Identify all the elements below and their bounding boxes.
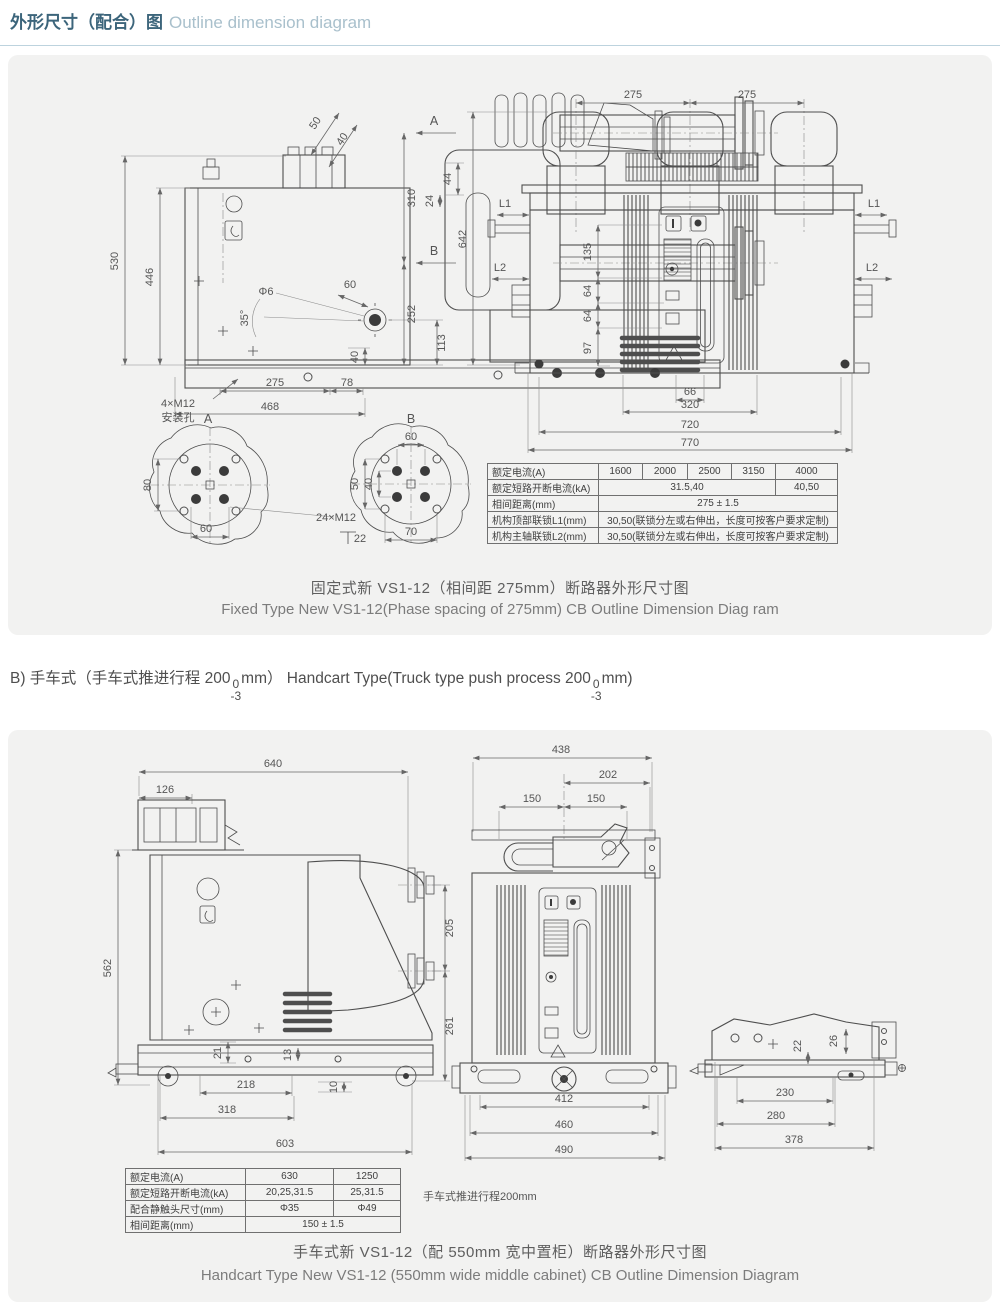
dim-642: 642 <box>457 230 469 248</box>
tolerance-lower: -3 <box>591 690 602 702</box>
dim-412: 412 <box>555 1093 573 1105</box>
handcart-type-panel: 640 126 562 205 261 21 <box>8 730 992 1302</box>
dim-202: 202 <box>599 769 617 781</box>
dim-150-left: 150 <box>523 793 541 805</box>
dim-26: 26 <box>828 1035 840 1047</box>
spec-cell: Φ49 <box>334 1201 401 1217</box>
dim-275: 275 <box>266 377 284 389</box>
dim-40b: 40 <box>349 351 361 363</box>
dim-770: 770 <box>681 437 699 449</box>
spec-label: 配合静触头尺寸(mm) <box>126 1201 246 1217</box>
spec-label: 机构顶部联锁L1(mm) <box>488 512 599 528</box>
handcart-side-view: 640 126 562 205 261 21 <box>102 758 456 1155</box>
detail-view-b: B 60 50 40 70 <box>349 412 471 544</box>
fixed-type-drawing: 530 446 50 40 44 24 Φ6 60 35° 113 40 A B… <box>8 55 992 635</box>
spec-label: 额定短路开断电流(kA) <box>488 480 599 496</box>
dim-80: 80 <box>142 479 154 491</box>
section-b-heading: B) 手车式（手车式推进行程 2000-3mm） Handcart Type(T… <box>10 666 633 702</box>
section-b-prefix: B) 手车式（手车式推进行程 200 <box>10 670 230 687</box>
dim-70: 70 <box>405 526 417 538</box>
mount-note-line2: 安装孔 <box>162 410 195 424</box>
section-b-suffix: mm) <box>602 670 633 687</box>
dim-310: 310 <box>406 189 418 207</box>
spec-cell: 2500 <box>688 464 732 480</box>
dim-603: 603 <box>276 1138 294 1150</box>
dim-97: 97 <box>582 342 594 354</box>
section-label-a: A <box>430 114 439 128</box>
dim-60-b: 60 <box>405 431 417 443</box>
tolerance-stack: 0-3 <box>591 678 602 702</box>
spec-cell: 630 <box>246 1169 334 1185</box>
spec-cell: 4000 <box>776 464 838 480</box>
dim-275-left: 275 <box>624 89 642 101</box>
spec-label: 机构主轴联锁L2(mm) <box>488 528 599 544</box>
page-title-zh: 外形尺寸（配合）图 <box>10 13 163 32</box>
page-title-en: Outline dimension diagram <box>169 13 371 32</box>
dim-135: 135 <box>582 243 594 261</box>
dim-378: 378 <box>785 1134 803 1146</box>
dim-60-a: 60 <box>200 523 212 535</box>
dim-205: 205 <box>444 919 456 937</box>
handcart-front-view: 438 202 150 150 412 460 <box>452 744 676 1161</box>
dim-35deg: 35° <box>239 310 251 327</box>
tolerance-stack: 0-3 <box>230 678 241 702</box>
dim-720: 720 <box>681 419 699 431</box>
tolerance-lower: -3 <box>230 690 241 702</box>
dim-252: 252 <box>406 305 418 323</box>
dim-275-right: 275 <box>738 89 756 101</box>
handcart-caption-en: Handcart Type New VS1-12 (550mm wide mid… <box>8 1267 992 1284</box>
dim-50: 50 <box>307 115 324 132</box>
handcart-spec-table: 额定电流(A)6301250 额定短路开断电流(kA)20,25,31.525,… <box>125 1168 401 1233</box>
dim-78: 78 <box>341 377 353 389</box>
dim-64a: 64 <box>582 285 594 297</box>
spec-cell: 31.5,40 <box>599 480 776 496</box>
dim-40a: 40 <box>334 131 351 148</box>
spec-cell: Φ35 <box>246 1201 334 1217</box>
section-label-b: B <box>430 244 438 258</box>
dim-446: 446 <box>144 268 156 286</box>
dim-13: 13 <box>282 1049 294 1061</box>
section-b-mid: mm） Handcart Type(Truck type push proces… <box>241 670 591 687</box>
dim-l2-right: L2 <box>866 262 878 274</box>
header-divider <box>0 45 1000 46</box>
spec-cell: 1250 <box>334 1169 401 1185</box>
spec-label: 额定电流(A) <box>488 464 599 480</box>
page-header: 外形尺寸（配合）图Outline dimension diagram <box>10 8 371 33</box>
dim-50-b: 50 <box>349 478 361 490</box>
dim-l1-right: L1 <box>868 198 880 210</box>
spec-cell: 20,25,31.5 <box>246 1185 334 1201</box>
dim-320: 320 <box>681 399 699 411</box>
dim-21: 21 <box>212 1047 224 1059</box>
detail-b-label: B <box>407 412 415 426</box>
dim-113: 113 <box>436 334 448 352</box>
spec-cell: 30,50(联锁分左或右伸出，长度可按客户要求定制) <box>599 512 838 528</box>
dim-l1-left: L1 <box>499 198 511 210</box>
dim-22: 22 <box>792 1040 804 1052</box>
dim-66: 66 <box>684 386 696 398</box>
dim-530: 530 <box>109 252 121 270</box>
dim-438: 438 <box>552 744 570 756</box>
handcart-caption-zh: 手车式新 VS1-12（配 550mm 宽中置柜）断路器外形尺寸图 <box>8 1241 992 1262</box>
dim-490: 490 <box>555 1144 573 1156</box>
fixed-caption-zh: 固定式新 VS1-12（相间距 275mm）断路器外形尺寸图 <box>8 577 992 598</box>
dim-468: 468 <box>261 401 279 413</box>
dim-22-depth: 22 <box>354 533 366 545</box>
handcart-base-view: 22 26 230 280 378 <box>690 1014 906 1151</box>
dim-640: 640 <box>264 758 282 770</box>
dim-318: 318 <box>218 1104 236 1116</box>
spec-cell: 25,31.5 <box>334 1185 401 1201</box>
spec-cell: 30,50(联锁分左或右伸出，长度可按客户要求定制) <box>599 528 838 544</box>
dim-261: 261 <box>444 1017 456 1035</box>
spec-label: 额定短路开断电流(kA) <box>126 1185 246 1201</box>
spec-label: 相间距离(mm) <box>126 1217 246 1233</box>
dim-44: 44 <box>442 173 454 185</box>
dim-230: 230 <box>776 1087 794 1099</box>
dim-280: 280 <box>767 1110 785 1122</box>
dim-218: 218 <box>237 1079 255 1091</box>
spec-cell: 3150 <box>732 464 776 480</box>
mount-note-line1: 4×M12 <box>161 398 195 410</box>
dim-phi6: Φ6 <box>259 286 274 298</box>
fixed-caption-en: Fixed Type New VS1-12(Phase spacing of 2… <box>8 601 992 618</box>
dim-64b: 64 <box>582 310 594 322</box>
fixed-type-panel: 530 446 50 40 44 24 Φ6 60 35° 113 40 A B… <box>8 55 992 635</box>
spec-cell: 275 ± 1.5 <box>599 496 838 512</box>
spec-cell: 150 ± 1.5 <box>246 1217 401 1233</box>
fixed-front-view: 275 275 642 L1 L1 L2 L2 <box>457 89 896 453</box>
dim-460: 460 <box>555 1119 573 1131</box>
dim-24: 24 <box>424 195 436 207</box>
dim-150-right: 150 <box>587 793 605 805</box>
fixed-spec-table: 额定电流(A)16002000250031504000 额定短路开断电流(kA)… <box>487 463 838 544</box>
travel-note: 手车式推进行程200mm <box>423 1188 537 1204</box>
dim-40-b: 40 <box>363 478 375 490</box>
dim-10: 10 <box>328 1081 340 1093</box>
dim-l2-left: L2 <box>494 262 506 274</box>
spec-cell: 2000 <box>643 464 688 480</box>
detail-view-a: A 80 60 24×M12 22 <box>142 412 366 545</box>
spec-label: 额定电流(A) <box>126 1169 246 1185</box>
bolt-spec-note: 24×M12 <box>316 512 356 524</box>
dim-60: 60 <box>344 279 356 291</box>
dim-126: 126 <box>156 784 174 796</box>
spec-cell: 40,50 <box>776 480 838 496</box>
spec-label: 相间距离(mm) <box>488 496 599 512</box>
spec-cell: 1600 <box>599 464 643 480</box>
detail-a-label: A <box>204 412 213 426</box>
dim-562: 562 <box>102 959 114 977</box>
